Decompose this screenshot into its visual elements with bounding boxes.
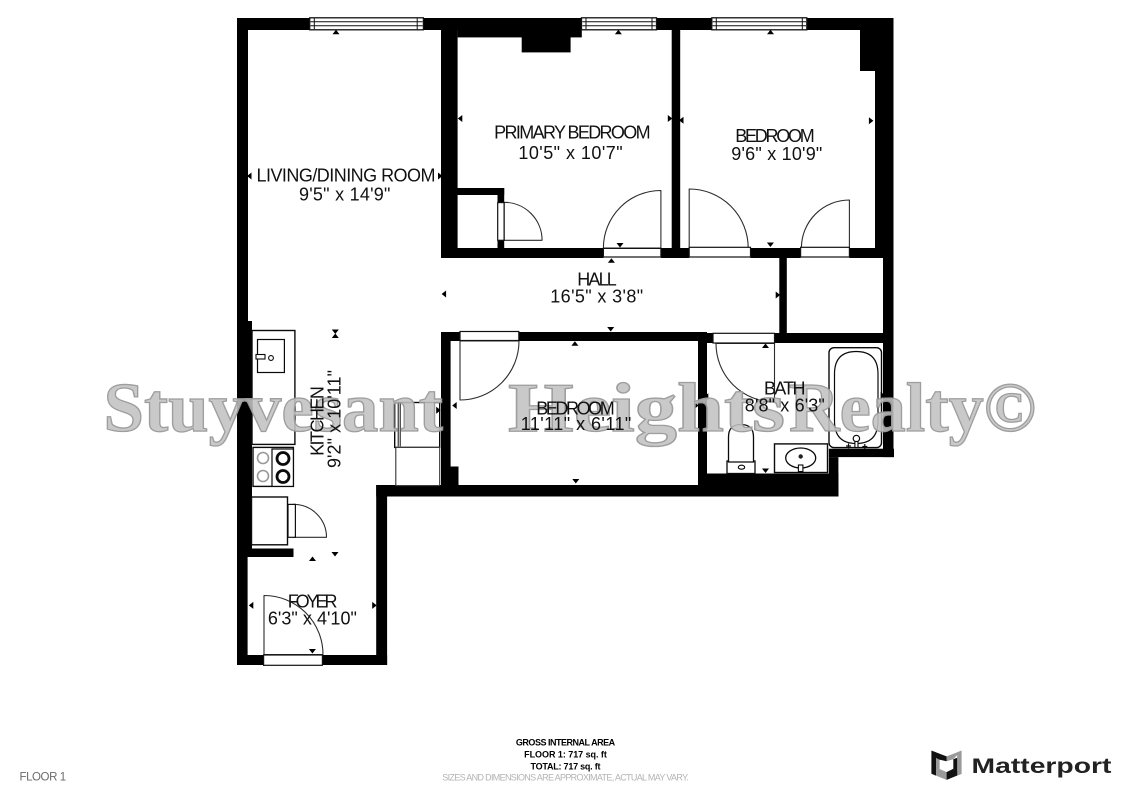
svg-text:Stuyvesant: Stuyvesant <box>104 370 444 447</box>
svg-text:FLOOR 1: FLOOR 1 <box>20 772 67 784</box>
svg-text:Matterport: Matterport <box>972 755 1112 778</box>
svg-text:8'8" x 6'3": 8'8" x 6'3" <box>745 396 825 416</box>
svg-text:SIZES AND DIMENSIONS ARE APPRO: SIZES AND DIMENSIONS ARE APPROXIMATE, AC… <box>442 773 689 783</box>
svg-text:Realty©: Realty© <box>789 370 1036 447</box>
svg-text:GROSS INTERNAL AREA: GROSS INTERNAL AREA <box>516 738 616 748</box>
svg-text:FLOOR 1: 717 sq. ft: FLOOR 1: 717 sq. ft <box>524 750 607 760</box>
svg-text:16'5" x 3'8": 16'5" x 3'8" <box>550 287 643 307</box>
svg-text:TOTAL: 717 sq. ft: TOTAL: 717 sq. ft <box>531 762 601 772</box>
svg-text:9'6" x 10'9": 9'6" x 10'9" <box>731 144 822 164</box>
svg-text:11'11" x 6'11": 11'11" x 6'11" <box>521 414 632 434</box>
svg-text:9'5" x 14'9": 9'5" x 14'9" <box>299 185 391 205</box>
svg-text:BEDROOM: BEDROOM <box>735 126 815 146</box>
svg-text:10'5" x 10'7": 10'5" x 10'7" <box>518 143 622 163</box>
svg-text:6'3" x 4'10": 6'3" x 4'10" <box>268 609 357 629</box>
svg-text:LIVING/DINING ROOM: LIVING/DINING ROOM <box>257 166 436 186</box>
svg-text:9'2" x 10'11": 9'2" x 10'11" <box>325 370 345 468</box>
svg-text:PRIMARY BEDROOM: PRIMARY BEDROOM <box>494 122 651 142</box>
